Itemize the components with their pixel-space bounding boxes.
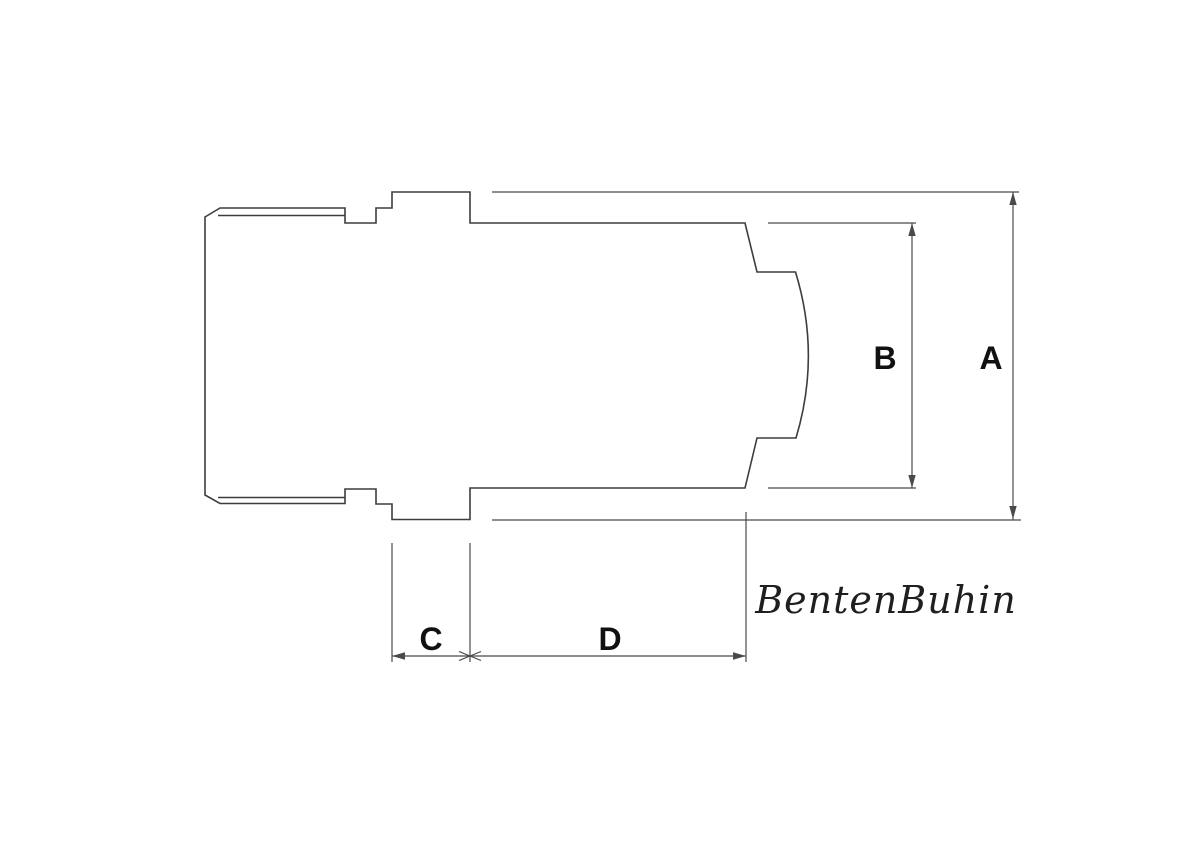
dimension-b-arrowhead-top <box>908 223 915 236</box>
dimension-b-label: B <box>873 340 896 376</box>
dimension-b-arrowhead-bottom <box>908 475 915 488</box>
dimension-c-arrowhead-left <box>392 652 405 659</box>
drawing-svg: B A C D BentenBuhin <box>0 0 1200 848</box>
dimension-c-label: C <box>419 621 442 657</box>
technical-drawing-canvas: B A C D BentenBuhin <box>0 0 1200 848</box>
dimension-a-arrowhead-bottom <box>1009 506 1016 519</box>
dimension-a <box>492 192 1021 520</box>
part-outline <box>205 192 808 520</box>
watermark-text: BentenBuhin <box>754 578 1017 622</box>
dimension-d-arrowhead-right <box>733 652 746 659</box>
dimension-a-label: A <box>979 340 1002 376</box>
dimension-a-arrowhead-top <box>1009 192 1016 205</box>
dimension-c-d-lines <box>392 512 746 662</box>
dimension-a-lines <box>492 192 1021 520</box>
dimension-d-label: D <box>598 621 621 657</box>
dimension-c-d <box>392 512 746 662</box>
part-outline-group <box>205 192 808 520</box>
